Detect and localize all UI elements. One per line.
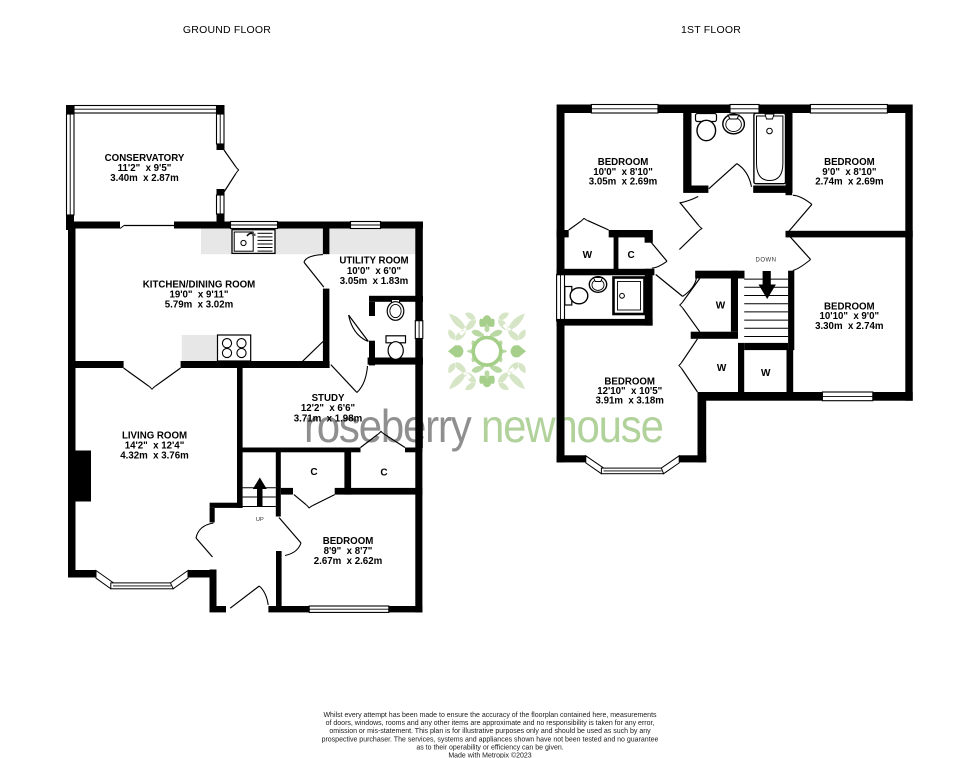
svg-text:3.05m x 1.83m: 3.05m x 1.83m	[340, 276, 409, 287]
svg-text:5.79m x 3.02m: 5.79m x 3.02m	[165, 300, 234, 311]
svg-text:Made with Metropix ©2023: Made with Metropix ©2023	[448, 752, 531, 758]
svg-text:1ST FLOOR: 1ST FLOOR	[681, 24, 741, 36]
svg-text:C: C	[380, 468, 387, 479]
svg-text:W: W	[717, 363, 727, 374]
svg-text:W: W	[761, 368, 771, 379]
svg-text:prospective purchaser. The ser: prospective purchaser. The services, sys…	[322, 736, 659, 743]
svg-text:2.67m x 2.62m: 2.67m x 2.62m	[314, 556, 383, 567]
svg-text:omission or mis-statement. Thi: omission or mis-statement. This plan is …	[329, 728, 651, 735]
svg-text:3.40m x 2.87m: 3.40m x 2.87m	[110, 173, 179, 184]
svg-text:3.30m x 2.74m: 3.30m x 2.74m	[815, 321, 884, 332]
svg-text:of doors, windows, rooms and a: of doors, windows, rooms and any other i…	[326, 720, 655, 727]
svg-text:4.32m x 3.76m: 4.32m x 3.76m	[120, 451, 189, 462]
svg-text:as to their operability or eff: as to their operability or efficiency ca…	[416, 744, 563, 751]
svg-text:roseberry newhouse: roseberry newhouse	[304, 401, 663, 452]
svg-text:3.05m x 2.69m: 3.05m x 2.69m	[589, 177, 658, 188]
svg-text:W: W	[583, 250, 593, 261]
svg-text:UP: UP	[256, 517, 264, 523]
svg-text:3.91m x 3.18m: 3.91m x 3.18m	[595, 395, 664, 406]
svg-text:C: C	[310, 467, 317, 478]
svg-text:GROUND FLOOR: GROUND FLOOR	[183, 24, 271, 36]
svg-text:DOWN: DOWN	[756, 258, 777, 264]
svg-text:2.74m x 2.69m: 2.74m x 2.69m	[815, 177, 884, 188]
svg-text:W: W	[716, 301, 726, 312]
svg-text:C: C	[627, 250, 634, 261]
svg-text:3.71m x 1.98m: 3.71m x 1.98m	[294, 413, 363, 424]
svg-text:Whilst every attempt has been: Whilst every attempt has been made to en…	[323, 712, 657, 719]
